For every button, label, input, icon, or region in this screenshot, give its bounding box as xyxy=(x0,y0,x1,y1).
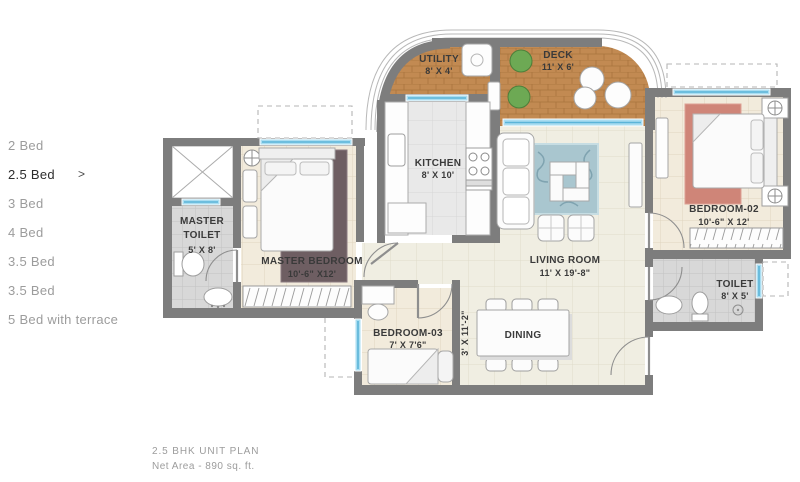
master-bedroom-dims: 10'-6" X12' xyxy=(288,269,336,279)
pillow xyxy=(265,162,296,175)
passage-dims: 3' X 11'-2" xyxy=(460,310,470,355)
wc-icon xyxy=(692,292,708,314)
tap-dot xyxy=(223,305,225,307)
wc-icon xyxy=(182,252,204,276)
tap-dot xyxy=(217,306,219,308)
sofa-cushion xyxy=(503,168,529,195)
kitchen-dims: 8' X 10' xyxy=(422,170,455,180)
stove-knobs xyxy=(466,180,492,186)
floor-plan: UTILITY 8' X 4' DECK 11' X 6' KITCHEN 8'… xyxy=(0,0,800,482)
kitchen-label: KITCHEN xyxy=(415,158,462,169)
pillow xyxy=(751,120,763,150)
page: 2 Bed 2.5 Bed> 3 Bed 4 Bed 3.5 Bed 3.5 B… xyxy=(0,0,800,482)
living-room-label: LIVING ROOM xyxy=(530,255,601,266)
utility-label: UTILITY xyxy=(419,54,459,65)
master-bed-headboard xyxy=(259,148,335,159)
dresser xyxy=(656,118,668,178)
pillow xyxy=(300,162,329,175)
nightstand xyxy=(243,206,257,238)
desk-chair xyxy=(368,304,388,320)
passage-floor xyxy=(362,243,460,284)
kitchen-sink xyxy=(388,134,405,166)
living-room-dims: 11' X 19'-8" xyxy=(540,268,591,278)
deck-chair xyxy=(605,82,631,108)
plant-icon xyxy=(510,50,532,72)
bedroom02-label: BEDROOM-02 xyxy=(689,204,759,215)
nightstand xyxy=(243,170,257,202)
desk xyxy=(362,286,394,304)
deck-chair xyxy=(574,87,596,109)
deck-dims: 11' X 6' xyxy=(542,62,574,72)
bedroom02-dims: 10'-6" X 12' xyxy=(698,217,749,227)
toilet-dims: 8' X 5' xyxy=(721,291,748,301)
plant-icon xyxy=(508,86,530,108)
wc-tank xyxy=(692,314,708,321)
washbasin-icon xyxy=(204,288,232,306)
deck-label: DECK xyxy=(543,50,573,61)
bedroom03-label: BEDROOM-03 xyxy=(373,328,443,339)
pillow xyxy=(438,351,453,382)
tap-dot xyxy=(211,305,213,307)
bed02-headboard xyxy=(764,118,777,186)
pillow xyxy=(751,153,763,183)
utility-dims: 8' X 4' xyxy=(425,66,452,76)
master-toilet-label-2: TOILET xyxy=(183,230,220,241)
console-unit xyxy=(629,143,642,207)
bedroom03-dims: 7' X 7'6" xyxy=(389,340,426,350)
dining-label: DINING xyxy=(505,330,542,341)
washbasin-icon xyxy=(656,296,682,314)
sofa-cushion xyxy=(503,197,529,224)
toilet-label: TOILET xyxy=(716,279,753,290)
utility-sink xyxy=(462,44,492,76)
sofa-cushion xyxy=(503,139,529,166)
master-bedroom-label: MASTER BEDROOM xyxy=(261,256,362,267)
master-wardrobe xyxy=(243,286,351,307)
master-toilet-label-1: MASTER xyxy=(180,216,224,227)
shower-dot xyxy=(737,309,739,311)
master-toilet-dims: 5' X 8' xyxy=(188,245,215,255)
bedroom02-wardrobe xyxy=(690,228,783,248)
kitchen-cabinet xyxy=(388,203,426,233)
